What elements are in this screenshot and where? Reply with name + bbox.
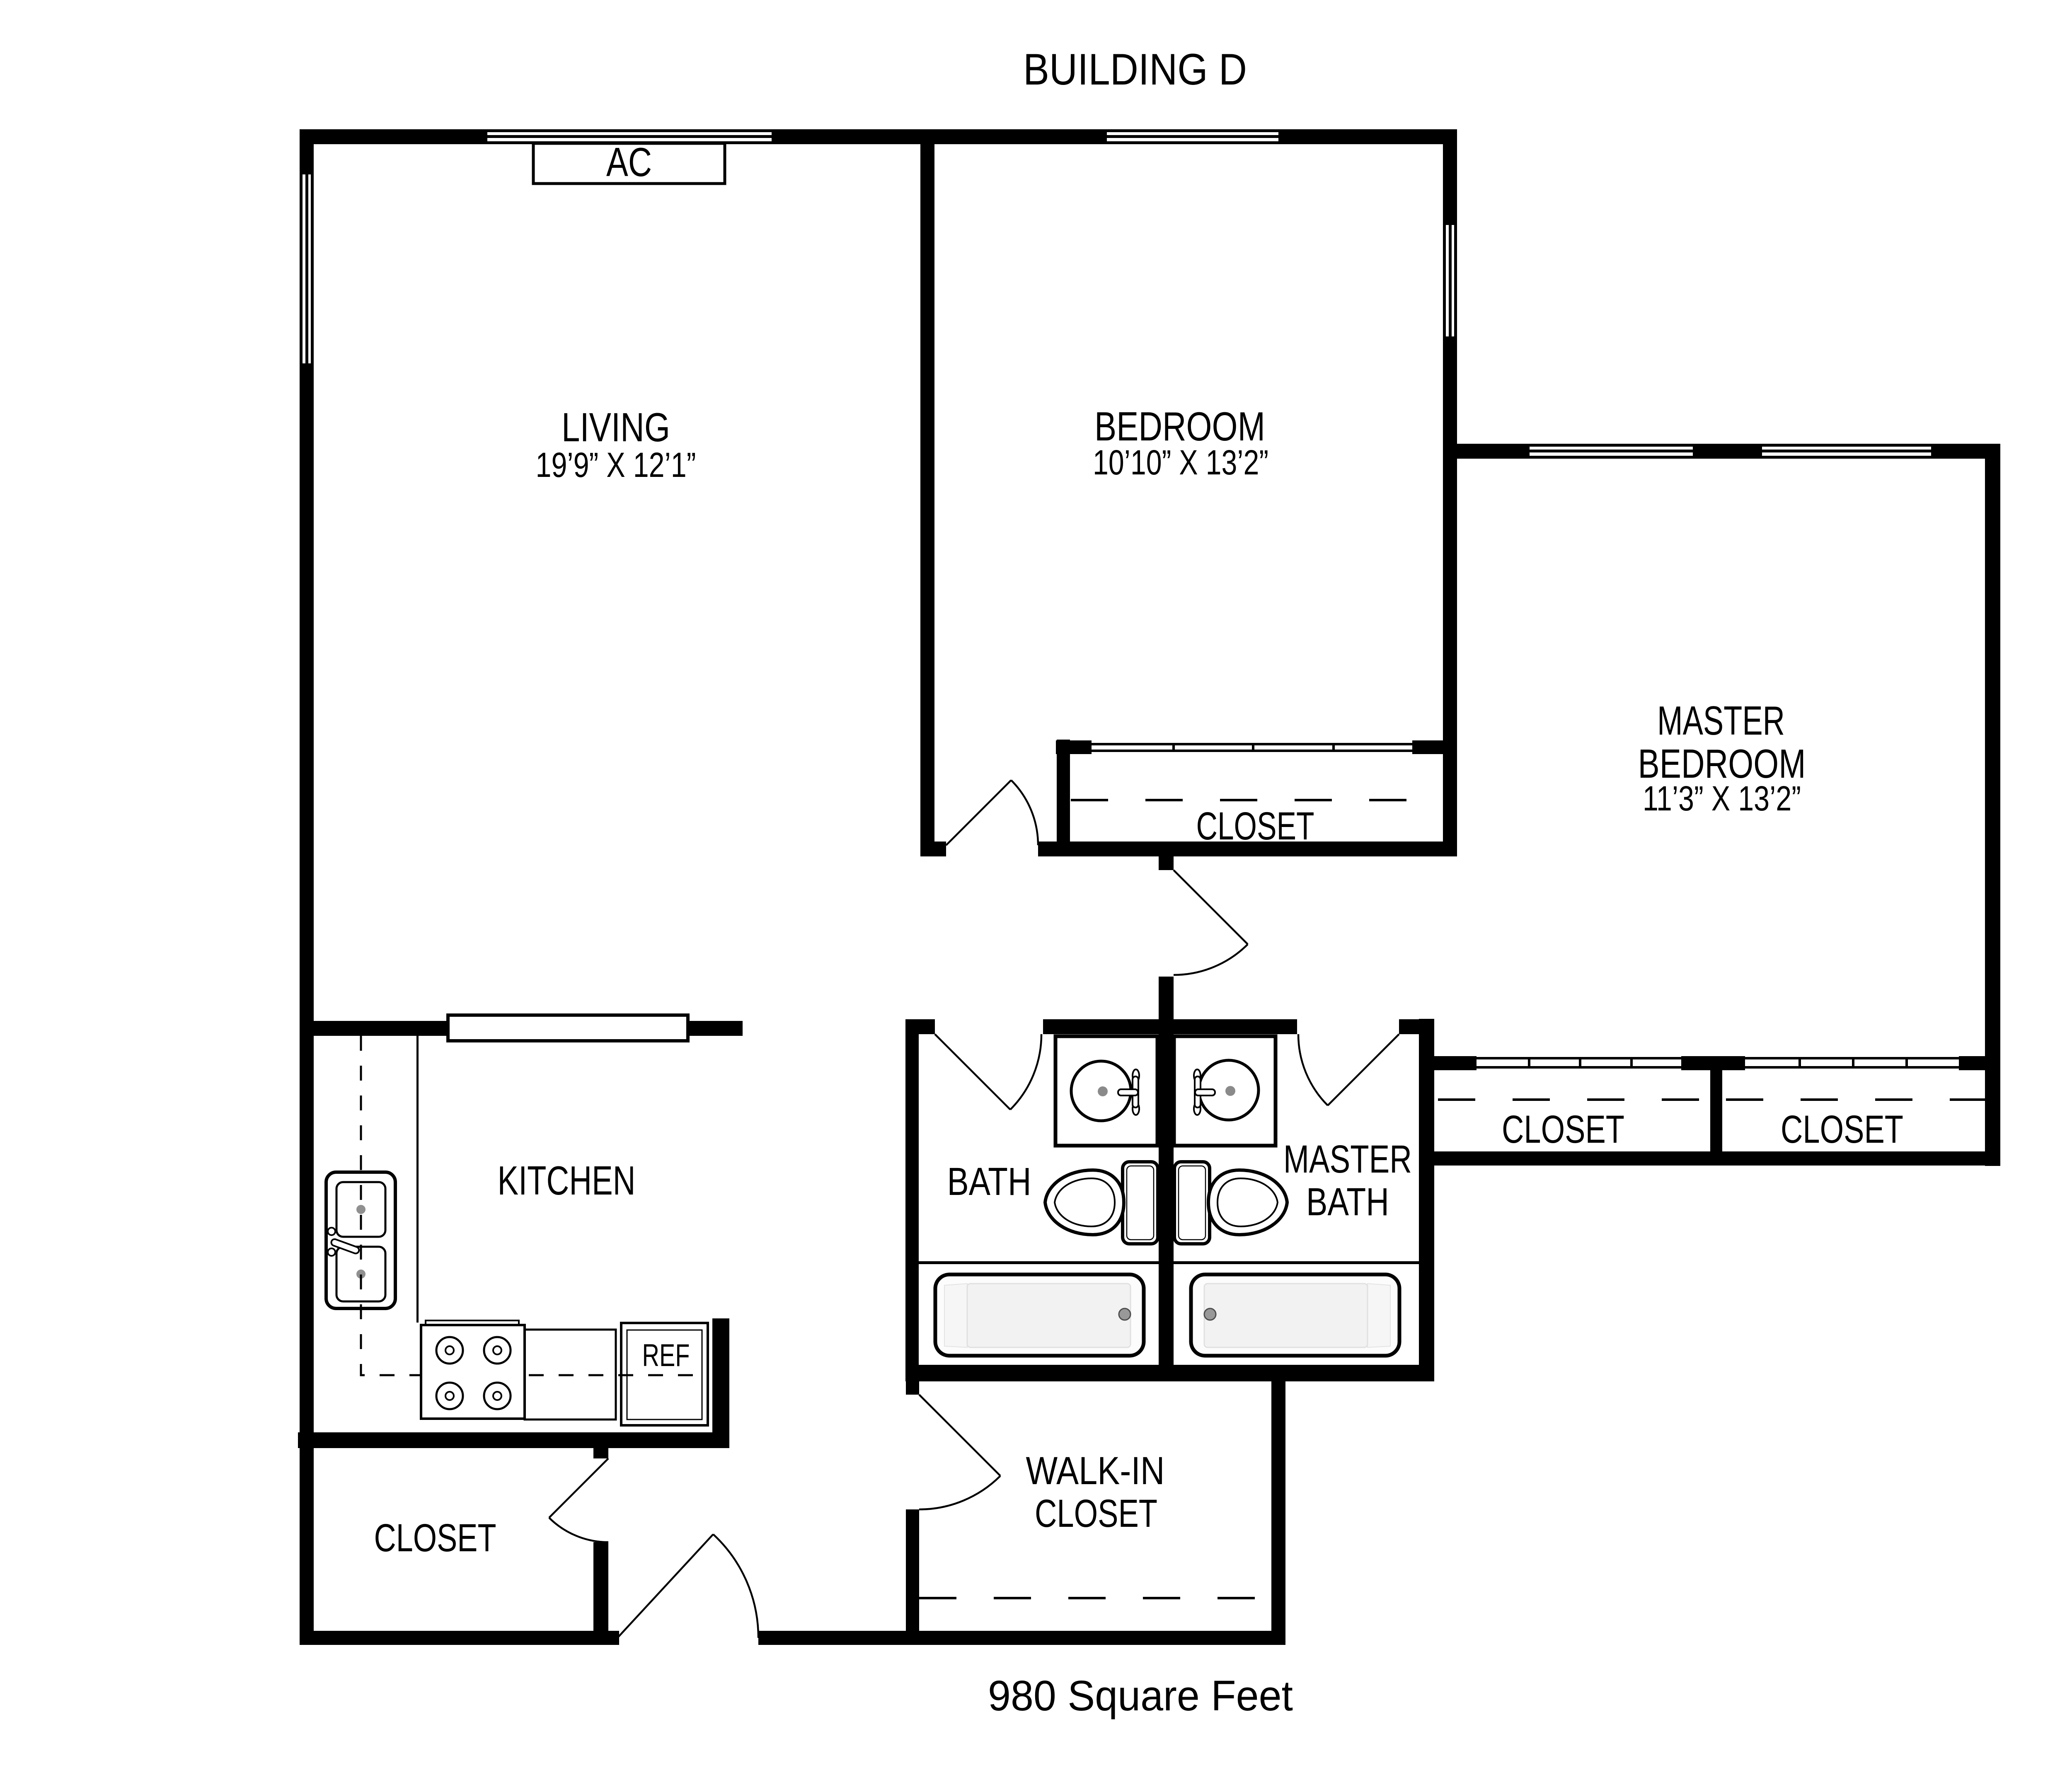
svg-text:CLOSET: CLOSET <box>1781 1108 1903 1151</box>
svg-text:REF: REF <box>642 1338 690 1373</box>
svg-text:980 Square Feet: 980 Square Feet <box>988 1672 1293 1719</box>
svg-text:WALK-IN: WALK-IN <box>1026 1449 1165 1493</box>
svg-text:BATH: BATH <box>1306 1180 1389 1224</box>
svg-text:CLOSET: CLOSET <box>374 1516 496 1560</box>
svg-text:BUILDING D: BUILDING D <box>1023 44 1247 94</box>
svg-text:19’9” X 12’1”: 19’9” X 12’1” <box>536 445 696 484</box>
svg-text:KITCHEN: KITCHEN <box>498 1158 636 1203</box>
svg-text:CLOSET: CLOSET <box>1196 804 1314 848</box>
svg-text:11’3” X 13’2”: 11’3” X 13’2” <box>1643 779 1801 818</box>
svg-text:AC: AC <box>606 139 652 185</box>
svg-text:MASTER: MASTER <box>1283 1137 1412 1181</box>
svg-text:LIVING: LIVING <box>562 404 670 450</box>
svg-text:BEDROOM: BEDROOM <box>1094 404 1265 449</box>
svg-text:CLOSET: CLOSET <box>1035 1492 1157 1536</box>
svg-text:CLOSET: CLOSET <box>1502 1108 1624 1151</box>
svg-text:MASTER: MASTER <box>1657 698 1785 743</box>
svg-text:10’10” X 13’2”: 10’10” X 13’2” <box>1093 443 1268 482</box>
svg-text:BATH: BATH <box>947 1160 1031 1204</box>
